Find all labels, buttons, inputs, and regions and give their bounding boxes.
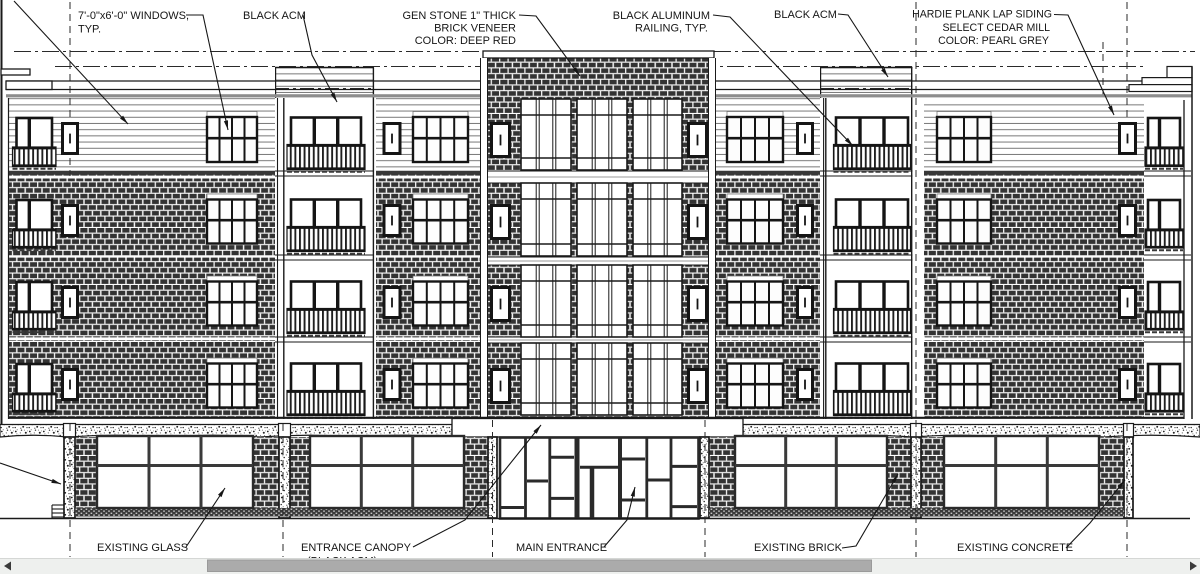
svg-text:TYP.: TYP. — [78, 24, 101, 36]
svg-text:BLACK ACM: BLACK ACM — [774, 9, 837, 21]
svg-text:BRICK VENEER: BRICK VENEER — [434, 23, 516, 35]
svg-text:7'-0"x6'-0" WINDOWS,: 7'-0"x6'-0" WINDOWS, — [78, 10, 189, 22]
svg-text:EXISTING BRICK: EXISTING BRICK — [754, 542, 843, 554]
svg-text:SELECT CEDAR MILL: SELECT CEDAR MILL — [942, 22, 1050, 34]
svg-text:BLACK ALUMINUM: BLACK ALUMINUM — [613, 10, 710, 22]
svg-text:BLACK ACM: BLACK ACM — [243, 10, 306, 22]
svg-text:ENTRANCE CANOPY: ENTRANCE CANOPY — [301, 542, 412, 554]
svg-text:HARDIE PLANK LAP SIDING: HARDIE PLANK LAP SIDING — [912, 9, 1052, 21]
svg-text:GEN STONE 1" THICK: GEN STONE 1" THICK — [402, 10, 516, 22]
svg-text:COLOR: DEEP RED: COLOR: DEEP RED — [415, 35, 516, 47]
svg-text:EXISTING GLASS: EXISTING GLASS — [97, 542, 188, 554]
svg-text:EXISTING CONCRETE: EXISTING CONCRETE — [957, 542, 1073, 554]
svg-text:COLOR: PEARL GREY: COLOR: PEARL GREY — [938, 35, 1049, 47]
svg-text:RAILING, TYP.: RAILING, TYP. — [635, 23, 708, 35]
svg-text:MAIN ENTRANCE: MAIN ENTRANCE — [516, 542, 607, 554]
